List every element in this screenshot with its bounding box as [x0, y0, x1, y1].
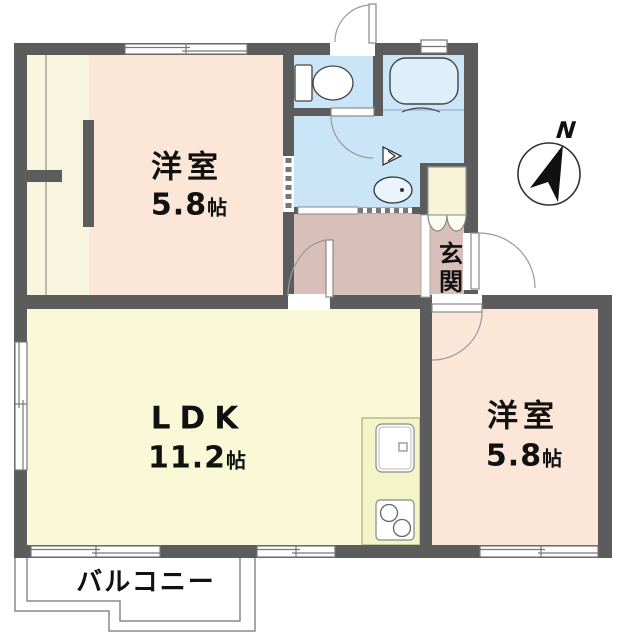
wall-ldk-bedroomse	[420, 309, 432, 545]
window-ldk-left	[15, 342, 27, 470]
door-front	[471, 233, 535, 289]
window-ldk-balcony-2	[257, 546, 335, 557]
window-bedroomse-bottom	[480, 546, 598, 557]
window-bedroomnw-top	[125, 44, 247, 54]
washbasin-icon	[374, 177, 412, 203]
opening-top-door	[330, 42, 375, 56]
entrance-label: 玄関	[432, 241, 467, 297]
stove-icon	[376, 500, 414, 540]
wall-entrance-left	[420, 175, 428, 215]
opening-hall-ldk	[288, 294, 330, 310]
compass-north-label: N	[555, 119, 577, 143]
floor-plan-drawing	[0, 0, 640, 640]
balcony-label: バルコニー	[76, 569, 215, 596]
bedroom-nw-name: 洋室	[151, 152, 223, 185]
closet-sliding-panel	[83, 120, 94, 227]
compass	[518, 143, 580, 205]
bedroom-se-label: 洋室	[487, 401, 559, 434]
entrance-step	[421, 215, 430, 297]
ldk-label: LDK	[151, 403, 248, 436]
ldk-name: LDK	[151, 403, 248, 436]
bedroom-se-size: 5.8帖	[486, 440, 562, 472]
kitchen-sink-icon	[376, 424, 414, 472]
room-hallway	[292, 213, 422, 297]
window-bath	[421, 40, 447, 53]
ldk-size: 11.2帖	[148, 442, 246, 474]
wall-toilet-bottom	[283, 108, 331, 116]
room-washroom-upper	[292, 110, 464, 165]
door-top-exterior	[335, 4, 376, 43]
toilet-icon	[295, 65, 353, 101]
shoe-cabinet	[428, 167, 466, 215]
window-ldk-balcony-1	[31, 546, 160, 557]
floor-plan: 洋室 5.8帖 LDK 11.2帖 洋室 5.8帖 玄関 バルコニー N	[0, 0, 640, 640]
wall-right-lower	[598, 295, 612, 558]
bedroom-se-name: 洋室	[487, 401, 559, 434]
bedroom-nw-size: 5.8帖	[151, 189, 227, 221]
sliding-door-bedroomnw	[283, 156, 294, 212]
bedroom-nw-label: 洋室	[151, 152, 223, 185]
wall-stub-closet	[27, 170, 62, 182]
sliding-door-washroom	[298, 207, 412, 214]
